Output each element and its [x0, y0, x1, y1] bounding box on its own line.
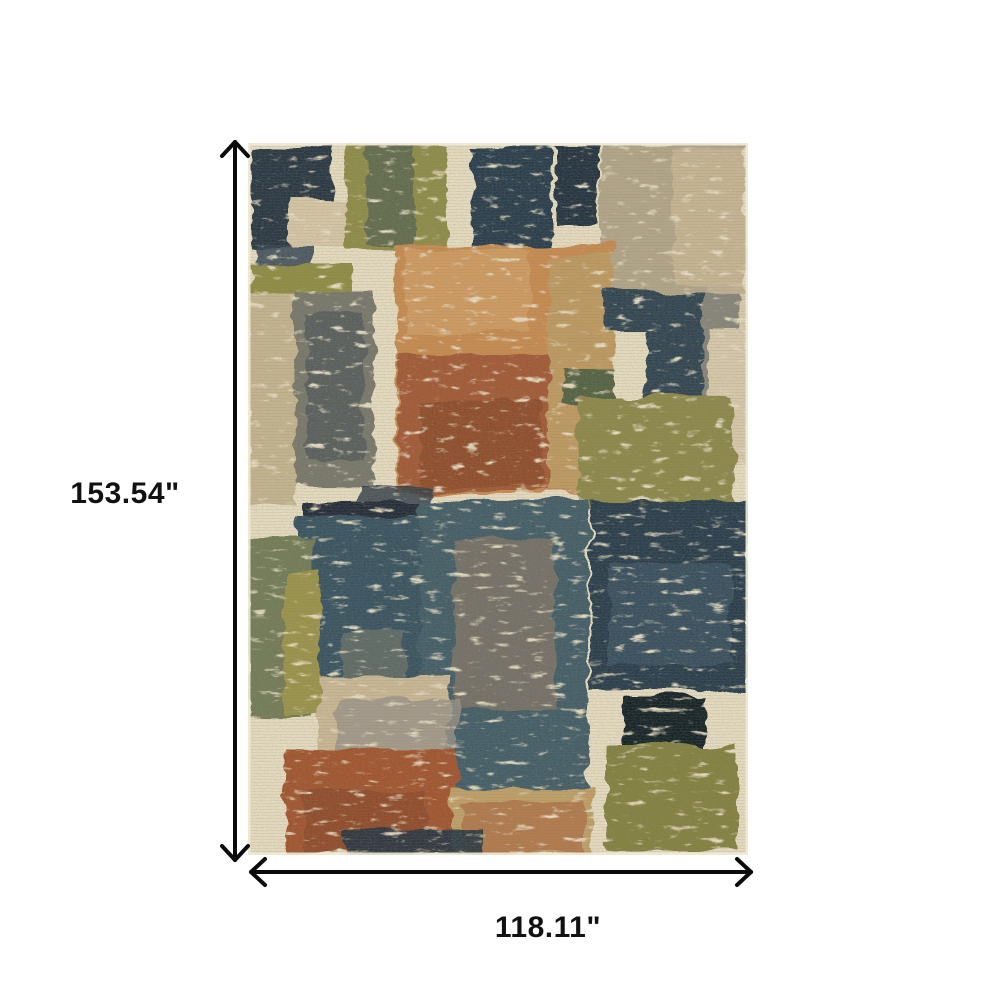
height-arrow-head-top	[222, 142, 248, 156]
rug-grain-texture	[248, 143, 748, 855]
height-dimension-label: 153.54"	[40, 477, 210, 511]
rug-image	[248, 143, 748, 855]
height-arrow-head-bottom	[222, 846, 248, 860]
width-arrow-head-right	[737, 859, 751, 885]
width-dimension-label: 118.11"	[468, 911, 628, 945]
product-dimension-figure: 153.54" 118.11"	[0, 0, 1000, 1000]
rug-artwork	[248, 143, 748, 855]
width-arrow-head-left	[251, 859, 265, 885]
